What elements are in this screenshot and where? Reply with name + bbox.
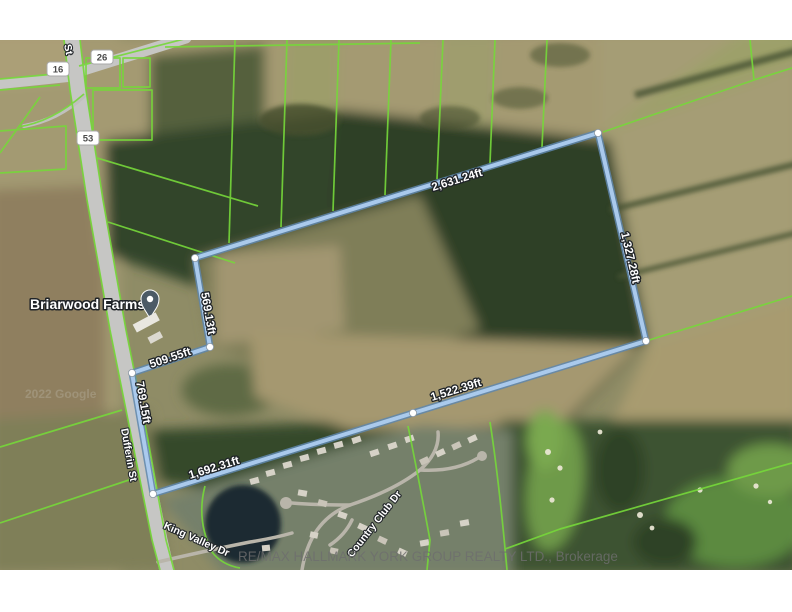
brokerage-watermark: RE/MAX HALLMARK YORK GROUP REALTY LTD., … (238, 549, 618, 564)
svg-text:53: 53 (83, 134, 94, 145)
svg-text:26: 26 (97, 53, 108, 64)
bottom-letterbox (0, 570, 792, 612)
map-canvas[interactable]: 2,631.24ft 1,327.28ft 1,522.39ft 1,692.3… (0, 0, 792, 612)
top-letterbox (0, 0, 792, 40)
satellite-base: 2,631.24ft 1,327.28ft 1,522.39ft 1,692.3… (0, 30, 792, 590)
route-badge-16: 16 (47, 62, 69, 76)
svg-text:16: 16 (53, 65, 64, 76)
route-badge-26: 26 (91, 50, 113, 64)
imagery-watermark: 2022 Google (25, 387, 97, 401)
listing-map-screenshot: 2,631.24ft 1,327.28ft 1,522.39ft 1,692.3… (0, 0, 792, 612)
place-label: Briarwood Farms (30, 296, 145, 312)
route-badge-53: 53 (77, 131, 99, 145)
